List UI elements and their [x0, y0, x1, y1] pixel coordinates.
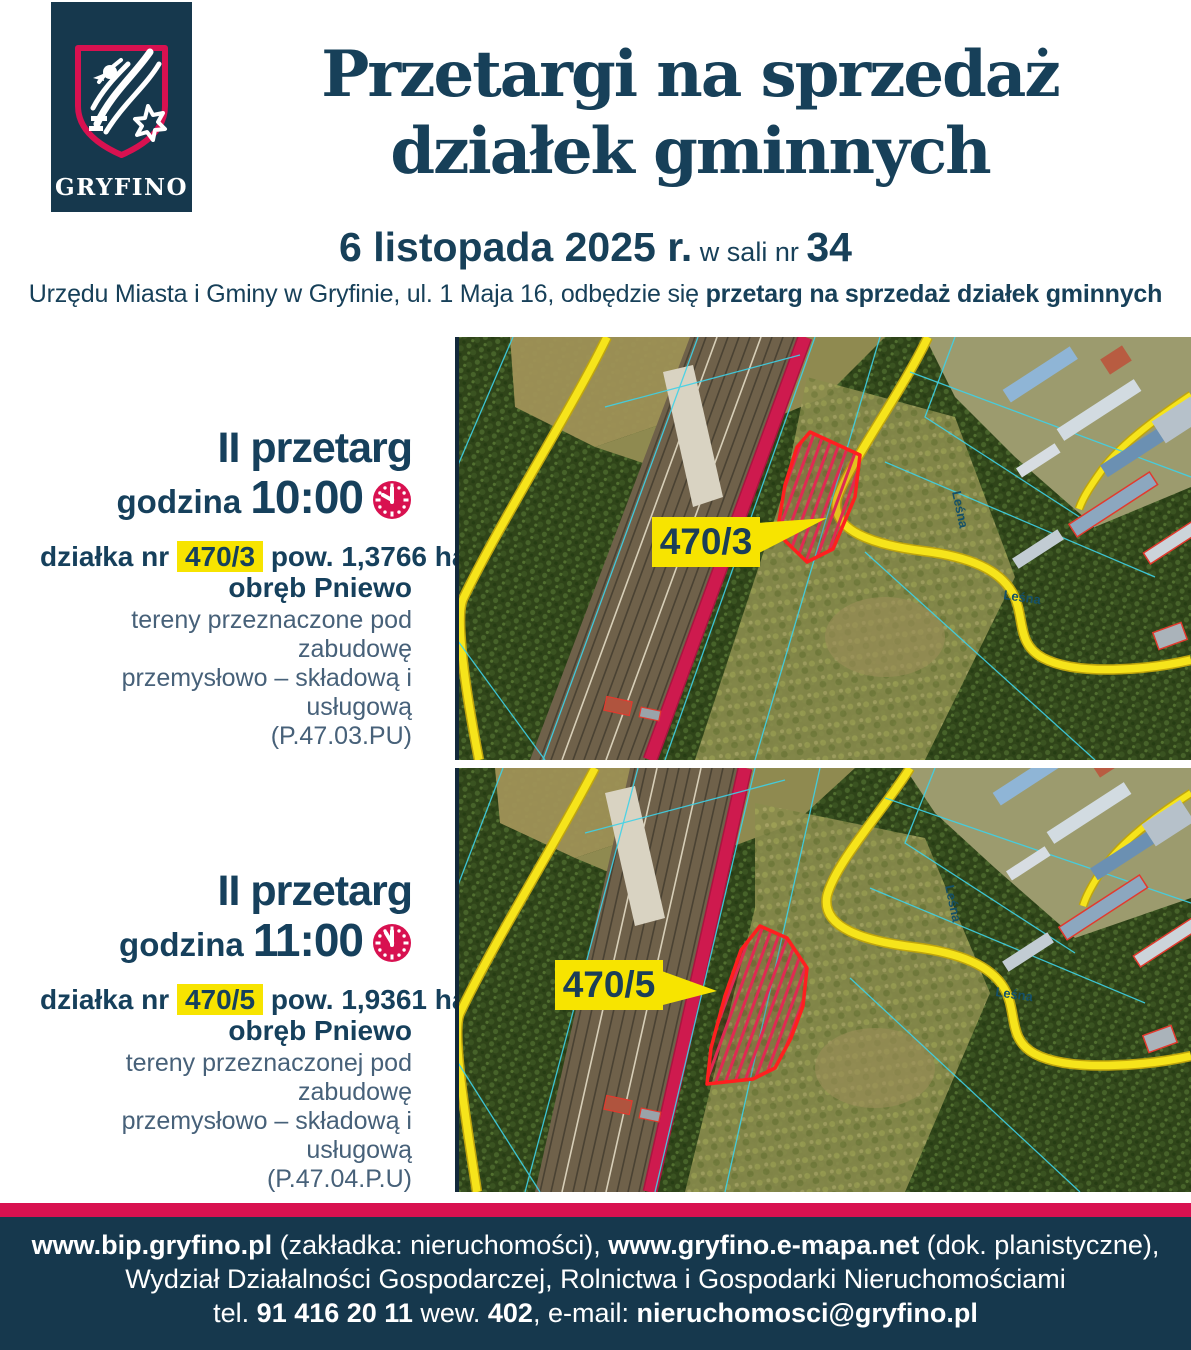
poster-page: GRYFINO Przetargi na sprzedaż działek gm…	[0, 0, 1191, 1350]
plot-number-highlight: 470/5	[177, 984, 263, 1015]
district-label: obręb	[228, 572, 314, 603]
footer-line-department: Wydział Działalności Gospodarczej, Rolni…	[0, 1262, 1191, 1296]
footer-text: tel.	[213, 1298, 257, 1328]
subtitle-regular: Urzędu Miasta i Gminy w Gryfinie, ul. 1 …	[29, 280, 706, 308]
section-heading: II przetarg	[40, 867, 412, 915]
footer-line-contact: tel. 91 416 20 11 wew. 402, e-mail: nier…	[0, 1296, 1191, 1330]
zoning-line1: tereny przeznaczonej pod zabudowę	[40, 1049, 412, 1107]
poster-title-line1: Przetargi na sprzedaż	[215, 36, 1165, 113]
poster-title: Przetargi na sprzedaż działek gminnych	[215, 36, 1165, 190]
poster-title-line2: działek gminnych	[215, 113, 1165, 190]
clock-icon	[372, 923, 412, 963]
time-value: 10:00	[250, 471, 363, 523]
district-line: obręb Pniewo	[40, 1015, 412, 1046]
footer-accent-stripe	[0, 1203, 1191, 1217]
gryfino-coat-of-arms-icon: GRYFINO	[51, 2, 192, 212]
gryfino-logo: GRYFINO	[51, 2, 192, 212]
room-label: w sali nr	[692, 237, 806, 267]
aerial-map-image: Leśna Leśna 470/3	[455, 337, 1191, 760]
plot-area: pow. 1,3766 ha	[271, 541, 468, 572]
phone-extension: 402	[488, 1298, 533, 1328]
subtitle: Urzędu Miasta i Gminy w Gryfinie, ul. 1 …	[0, 280, 1191, 309]
auction-section-1: II przetarg godzina 10:00	[40, 424, 412, 751]
footer-text: (dok. planistyczne),	[919, 1230, 1159, 1260]
footer-text: , e-mail:	[533, 1298, 637, 1328]
bip-url: www.bip.gryfino.pl	[32, 1230, 272, 1260]
aerial-map-parcel-470-3: Leśna Leśna 470/3	[455, 337, 1191, 760]
plot-area: pow. 1,9361 ha	[271, 984, 468, 1015]
zoning-description: tereny przeznaczonej pod zabudowę przemy…	[40, 1049, 412, 1194]
footer: www.bip.gryfino.pl (zakładka: nieruchomo…	[0, 1217, 1191, 1350]
plot-label: działka nr	[40, 541, 169, 572]
zoning-line1: tereny przeznaczone pod zabudowę	[40, 606, 412, 664]
callout-label: 470/5	[563, 964, 656, 1005]
phone-number: 91 416 20 11	[257, 1298, 413, 1328]
date-line: 6 listopada 2025 r. w sali nr 34	[0, 224, 1191, 271]
plot-number-highlight: 470/3	[177, 541, 263, 572]
plot-label: działka nr	[40, 984, 169, 1015]
email-address: nieruchomosci@gryfino.pl	[636, 1298, 977, 1328]
zoning-line2: przemysłowo – składową i usługową	[40, 664, 412, 722]
clock-icon	[372, 480, 412, 520]
district-line: obręb Pniewo	[40, 572, 412, 603]
time-value: 11:00	[253, 914, 363, 966]
room-number: 34	[806, 224, 852, 270]
section-heading: II przetarg	[40, 424, 412, 472]
zoning-description: tereny przeznaczone pod zabudowę przemys…	[40, 606, 412, 751]
plot-line: działka nr 470/5 pow. 1,9361 ha	[40, 984, 412, 1015]
aerial-map-parcel-470-5: Leśna Leśna 470/5	[455, 768, 1191, 1192]
aerial-map-image: Leśna Leśna 470/5	[455, 768, 1191, 1192]
district-name: Pniewo	[314, 572, 412, 603]
subtitle-bold: przetarg na sprzedaż działek gminnych	[706, 280, 1163, 308]
footer-text: wew.	[413, 1298, 488, 1328]
zoning-plan-code: (P.47.04.P.U)	[40, 1165, 412, 1194]
time-row: godzina 10:00	[40, 472, 412, 534]
logo-wordmark: GRYFINO	[55, 174, 188, 201]
zoning-plan-code: (P.47.03.PU)	[40, 722, 412, 751]
callout-label: 470/3	[660, 521, 753, 562]
plot-line: działka nr 470/3 pow. 1,3766 ha	[40, 541, 412, 572]
time-row: godzina 11:00	[40, 915, 412, 977]
time-label: godzina	[119, 926, 253, 963]
footer-line-websites: www.bip.gryfino.pl (zakładka: nieruchomo…	[0, 1228, 1191, 1262]
time-label: godzina	[117, 483, 251, 520]
date-text: 6 listopada 2025 r.	[339, 224, 692, 270]
emapa-url: www.gryfino.e-mapa.net	[608, 1230, 919, 1260]
auction-section-2: II przetarg godzina 11:00	[40, 867, 412, 1194]
district-name: Pniewo	[314, 1015, 412, 1046]
zoning-line2: przemysłowo – składową i usługową	[40, 1107, 412, 1165]
district-label: obręb	[228, 1015, 314, 1046]
footer-text: (zakładka: nieruchomości),	[272, 1230, 608, 1260]
